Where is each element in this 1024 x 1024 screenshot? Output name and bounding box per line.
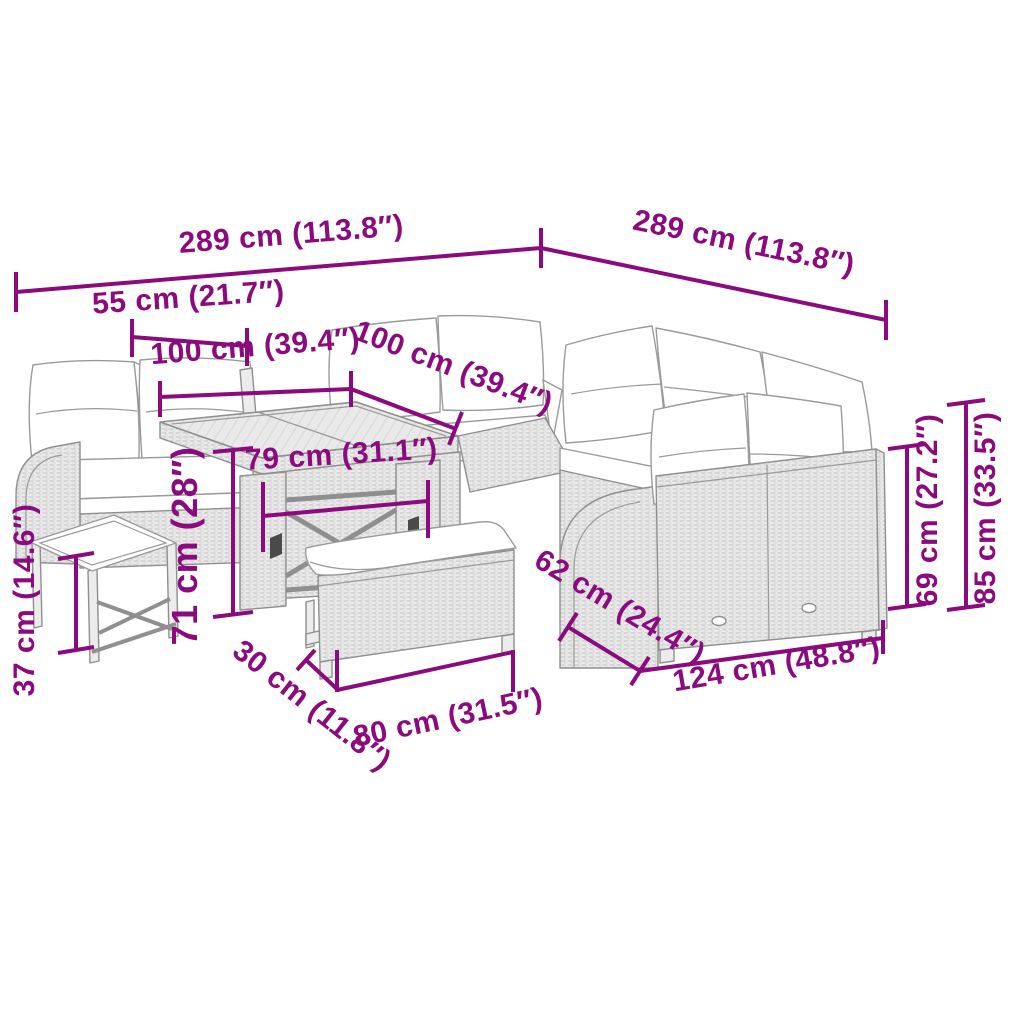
right-sofa-drain-hole-1 [712, 617, 726, 626]
dim-overall-width-label: 289 cm (113.8″) [630, 204, 857, 282]
footstool [30, 515, 178, 663]
dimension-diagram: 289 cm (113.8″) 289 cm (113.8″) 55 cm (2… [0, 0, 1024, 1024]
dim-seat-back-height-label: 69 cm (27.2″) [911, 414, 944, 607]
dim-overall-depth-label: 289 cm (113.8″) [178, 209, 405, 260]
dim-stool-height-label: 37 cm (14.6″) [8, 504, 41, 697]
dim-total-height-label: 85 cm (33.5″) [969, 412, 1002, 605]
dim-bench-width-label: 80 cm (31.5″) [350, 682, 545, 754]
right-sofa-drain-hole-2 [802, 604, 816, 613]
dim-table-height-label: 71 cm (28″) [164, 447, 205, 646]
diagram-canvas: 289 cm (113.8″) 289 cm (113.8″) 55 cm (2… [0, 0, 1024, 1024]
